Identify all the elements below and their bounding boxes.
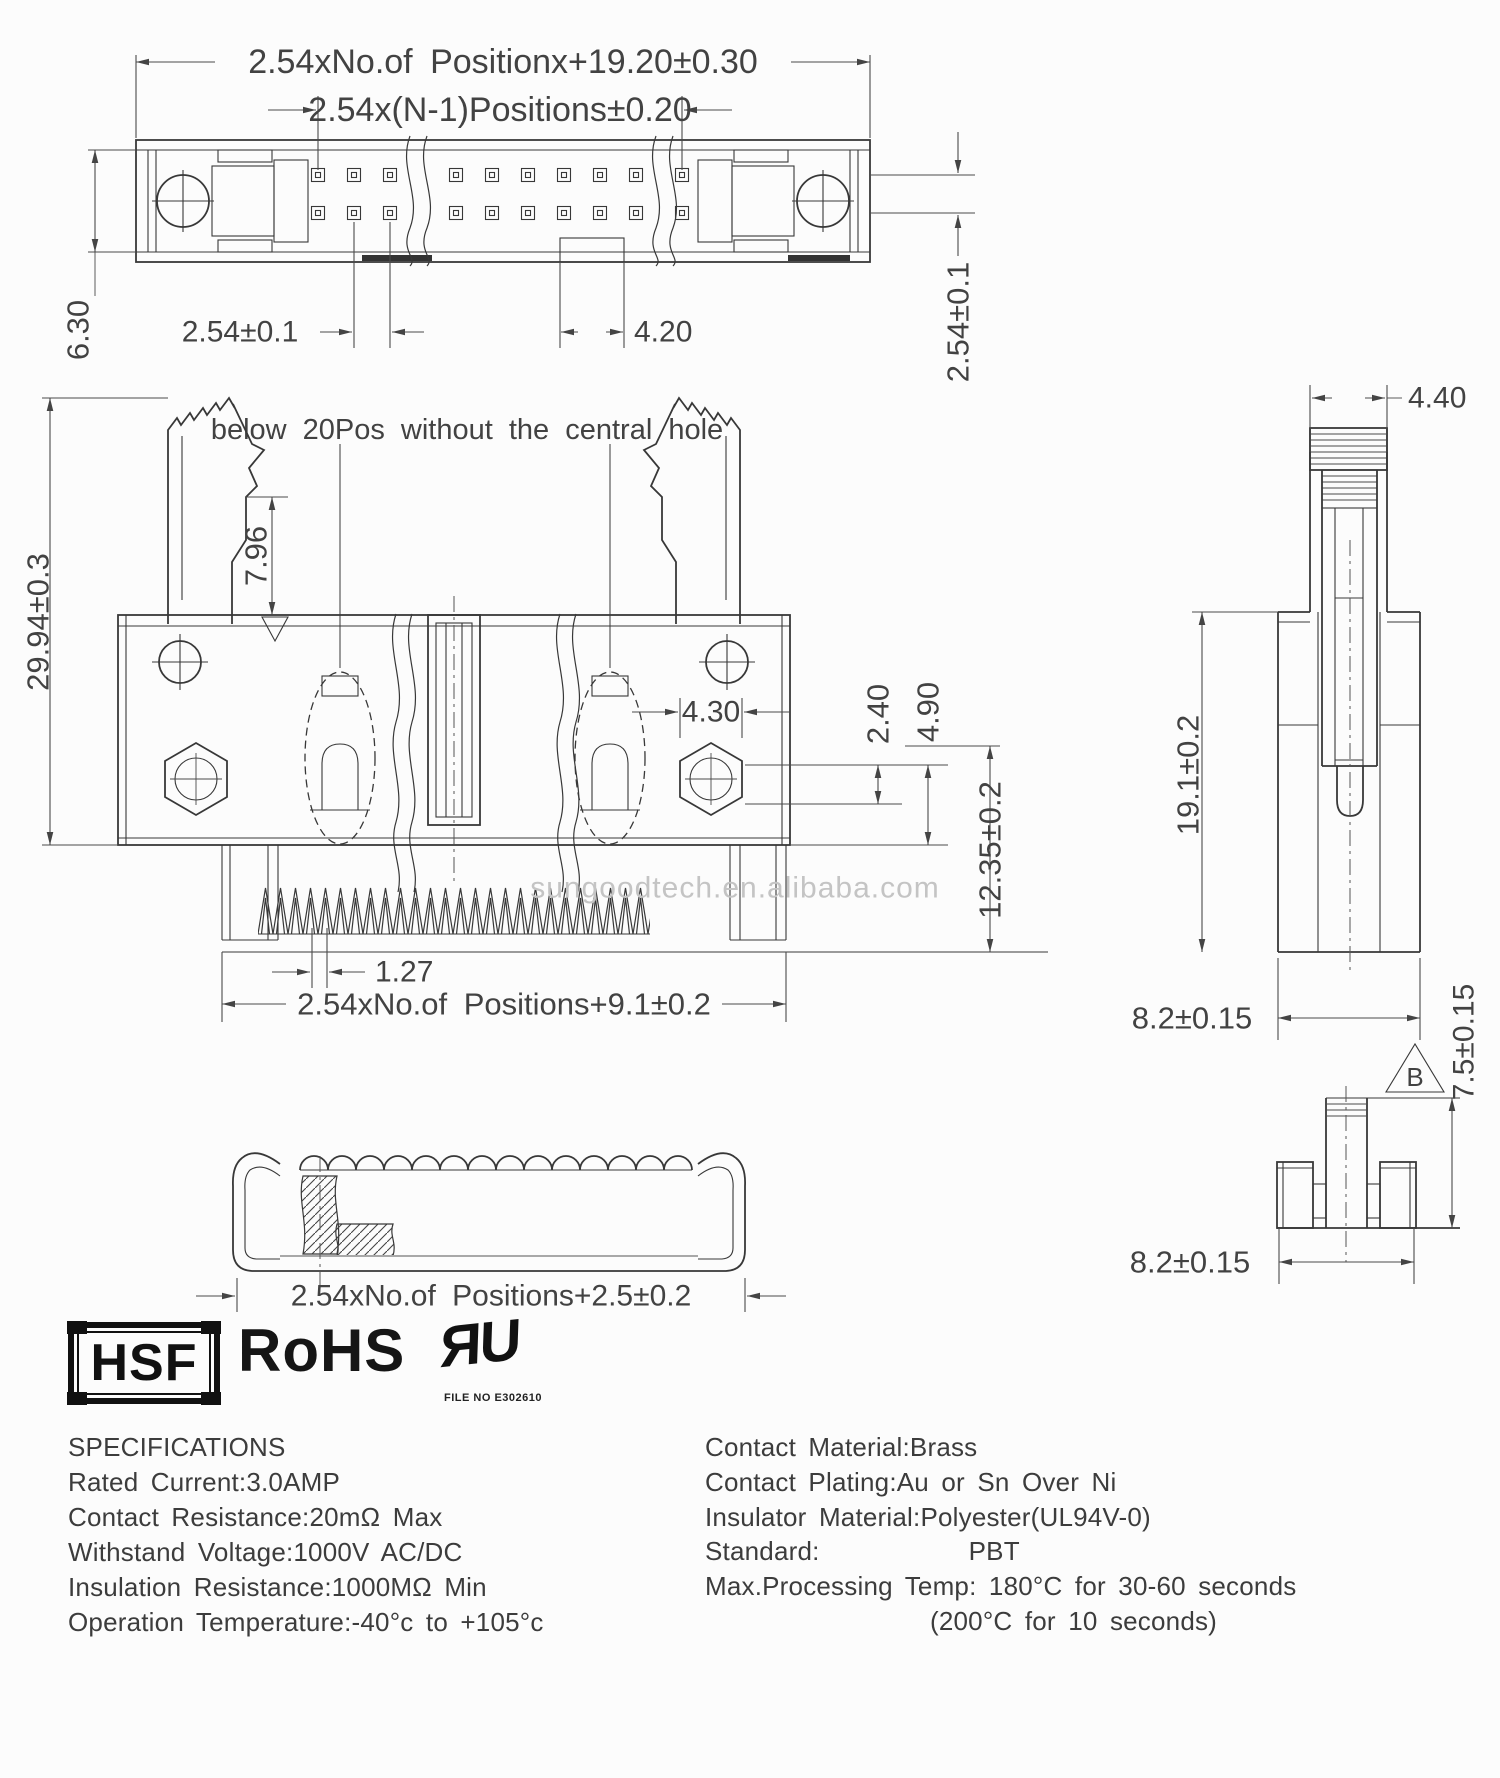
dim-end-depth: 8.2±0.15 (1130, 1245, 1250, 1280)
top-view-drawing: 2.54xNo.of Positionx+19.20±0.30 2.54x(N-… (61, 43, 976, 382)
dim-side-depth: 8.2±0.15 (1132, 1001, 1252, 1036)
dim-top-row-pitch: 2.54±0.1 (941, 262, 976, 382)
dim-front-tooth-pitch: 1.27 (375, 956, 433, 989)
ul-file-number: FILE NO E302610 (444, 1392, 542, 1404)
rohs-logo: RoHS (238, 1316, 405, 1385)
dim-front-latch: 7.96 (239, 526, 274, 586)
dim-top-key-width: 4.20 (634, 316, 692, 349)
dim-side-latch-width: 4.40 (1408, 382, 1466, 415)
spec-line-rated-current: Rated Current:3.0AMP (68, 1467, 340, 1498)
dim-top-height: 6.30 (61, 300, 96, 360)
dim-top-pin-span: 2.54x(N-1)Positions±0.20 (308, 91, 691, 129)
datum-b-label: B (1406, 1062, 1423, 1092)
spec-line-contact-resistance: Contact Resistance:20mΩ Max (68, 1502, 442, 1533)
material-line-contact: Contact Material:Brass (705, 1432, 977, 1463)
side-view-drawing: 4.40 19.1±0.2 8.2±0.15 (1132, 382, 1467, 1041)
dim-front-boss-width: 4.30 (682, 696, 740, 729)
dim-front-standoff: 4.90 (911, 682, 946, 742)
watermark-text: sungoodtech.en.alibaba.com (530, 872, 940, 905)
dim-top-overall: 2.54xNo.of Positionx+19.20±0.30 (248, 43, 758, 81)
dim-front-pin-length: 12.35±0.2 (973, 781, 1008, 919)
specifications-title: SPECIFICATIONS (68, 1432, 286, 1463)
front-view-drawing: below 20Pos without the central hole (21, 398, 1049, 1022)
material-line-standard: Standard: PBT (705, 1536, 1020, 1567)
dim-end-height: 7.5±0.15 (1448, 984, 1481, 1101)
cable-clamp-drawing: 2.54xNo.of Positions+2.5±0.2 (196, 1153, 786, 1312)
material-line-insulator: Insulator Material:Polyester(UL94V-0) (705, 1502, 1151, 1533)
material-line-plating: Contact Plating:Au or Sn Over Ni (705, 1467, 1116, 1498)
datasheet-page: 2.54xNo.of Positionx+19.20±0.30 2.54x(N-… (0, 0, 1500, 1778)
dim-top-pitch: 2.54±0.1 (182, 316, 299, 349)
material-line-processing-temp: Max.Processing Temp: 180°C for 30-60 sec… (705, 1571, 1296, 1602)
spec-line-withstand-voltage: Withstand Voltage:1000V AC/DC (68, 1537, 462, 1568)
hsf-logo: HSF (68, 1322, 220, 1404)
dim-side-height: 19.1±0.2 (1171, 715, 1206, 835)
spec-line-operation-temperature: Operation Temperature:-40°c to +105°c (68, 1607, 544, 1638)
spec-line-insulation-resistance: Insulation Resistance:1000MΩ Min (68, 1572, 487, 1603)
dim-front-total-height: 29.94±0.3 (21, 553, 56, 691)
ul-recognized-icon: ЯU (439, 1306, 521, 1382)
dim-front-body-width: 2.54xNo.of Positions+9.1±0.2 (297, 987, 711, 1022)
hsf-logo-text: HSF (77, 1331, 211, 1395)
note-text: below 20Pos without the central hole (211, 414, 723, 446)
dim-front-boss-height: 2.40 (861, 684, 896, 744)
material-line-processing-temp-2: (200°C for 10 seconds) (930, 1606, 1217, 1637)
